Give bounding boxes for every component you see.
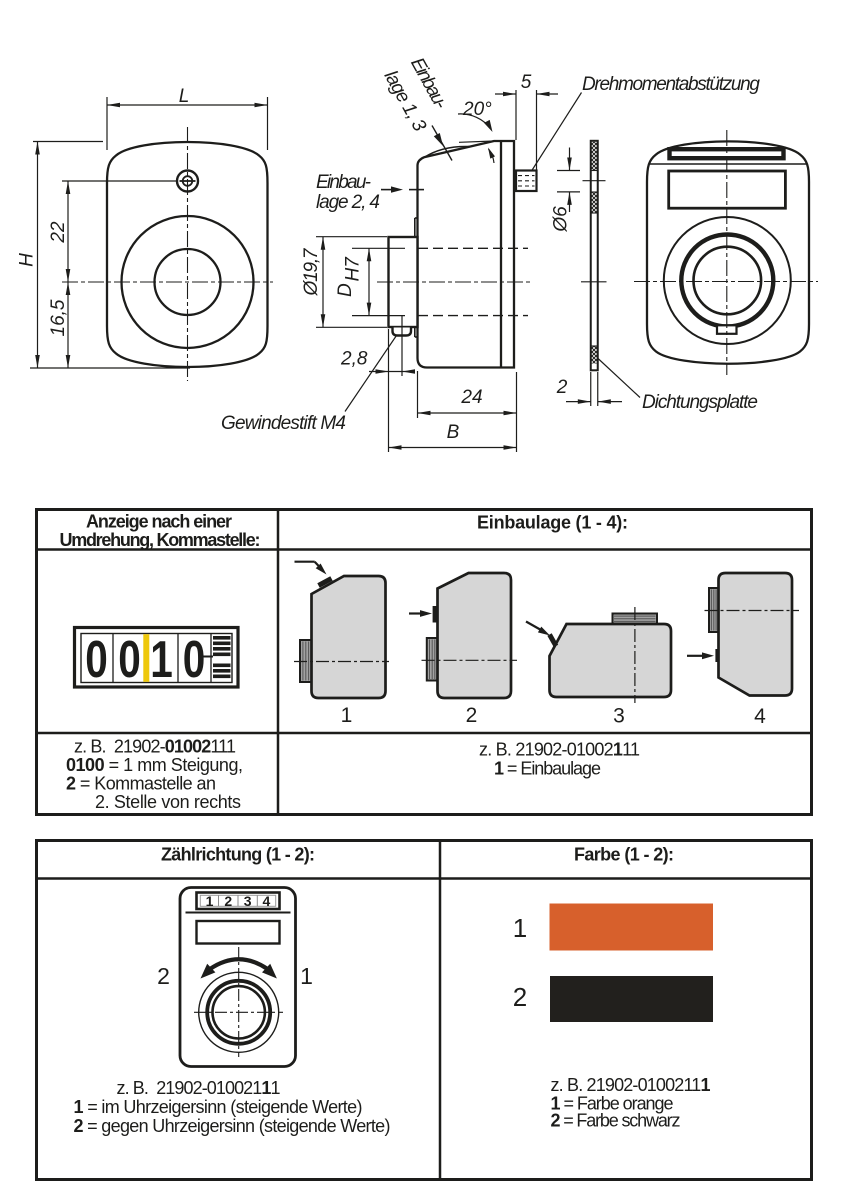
svg-text:H7: H7 — [343, 256, 364, 282]
svg-text:4: 4 — [754, 705, 766, 728]
svg-text:Gewindestift M4: Gewindestift M4 — [221, 413, 346, 434]
svg-text:L: L — [179, 86, 190, 107]
svg-text:Anzeige nach einer: Anzeige nach einer — [86, 512, 232, 532]
svg-text:5: 5 — [521, 72, 532, 93]
svg-text:0100 = 1 mm Steigung,: 0100 = 1 mm Steigung, — [66, 755, 243, 775]
svg-text:1: 1 — [150, 630, 173, 688]
svg-text:2. Stelle von rechts: 2. Stelle von rechts — [95, 792, 241, 812]
svg-text:2 = Farbe schwarz: 2 = Farbe schwarz — [551, 1111, 681, 1131]
svg-text:3: 3 — [244, 893, 252, 909]
svg-text:2: 2 — [556, 377, 568, 398]
svg-text:1 = im Uhrzeigersinn (steigend: 1 = im Uhrzeigersinn (steigende Werte) — [74, 1097, 363, 1117]
svg-text:Ø6: Ø6 — [551, 206, 572, 233]
svg-text:4: 4 — [263, 893, 271, 909]
svg-text:0: 0 — [118, 630, 141, 688]
svg-text:Einbaulage (1 - 4):: Einbaulage (1 - 4): — [477, 513, 628, 533]
svg-text:Umdrehung, Kommastelle:: Umdrehung, Kommastelle: — [60, 530, 261, 550]
svg-text:B: B — [447, 422, 460, 443]
svg-text:2: 2 — [466, 704, 478, 727]
svg-text:2: 2 — [224, 893, 232, 909]
svg-text:H: H — [17, 253, 38, 267]
svg-text:1: 1 — [341, 704, 353, 727]
svg-text:2 = gegen Uhrzeigersinn (steig: 2 = gegen Uhrzeigersinn (steigende Werte… — [74, 1116, 391, 1136]
svg-text:16,5: 16,5 — [48, 299, 69, 336]
svg-text:Zählrichtung (1 - 2):: Zählrichtung (1 - 2): — [161, 845, 315, 865]
svg-text:0: 0 — [183, 630, 206, 688]
svg-text:z. B. 21902-01002111: z. B. 21902-01002111 — [479, 740, 640, 760]
svg-text:Dichtungsplatte: Dichtungsplatte — [642, 392, 758, 413]
svg-text:Farbe (1 - 2):: Farbe (1 - 2): — [574, 845, 674, 865]
svg-text:3: 3 — [613, 705, 625, 728]
svg-text:Drehmomentabstützung: Drehmomentabstützung — [582, 74, 760, 95]
svg-text:z. B. 21902-01002111: z. B. 21902-01002111 — [117, 1078, 281, 1098]
svg-text:Ø19,7: Ø19,7 — [301, 247, 322, 296]
svg-text:z. B. 21902-01002111: z. B. 21902-01002111 — [74, 737, 236, 757]
svg-text:20°: 20° — [462, 99, 492, 120]
svg-text:lage 2, 4: lage 2, 4 — [316, 192, 380, 213]
svg-text:1: 1 — [300, 963, 313, 989]
svg-text:2: 2 — [513, 982, 527, 1012]
svg-text:22: 22 — [48, 221, 69, 244]
svg-text:1 = Einbaulage: 1 = Einbaulage — [494, 759, 601, 779]
svg-text:2 = Kommastelle an: 2 = Kommastelle an — [66, 774, 216, 794]
svg-text:1: 1 — [513, 913, 527, 943]
svg-text:1: 1 — [206, 893, 214, 909]
svg-text:z. B. 21902-01002111: z. B. 21902-01002111 — [551, 1075, 711, 1095]
svg-text:24: 24 — [460, 387, 482, 408]
svg-text:2,8: 2,8 — [340, 349, 368, 370]
svg-text:Einbau-: Einbau- — [316, 172, 371, 193]
svg-text:D: D — [335, 283, 356, 297]
svg-text:0: 0 — [85, 630, 108, 688]
svg-text:2: 2 — [157, 963, 170, 989]
